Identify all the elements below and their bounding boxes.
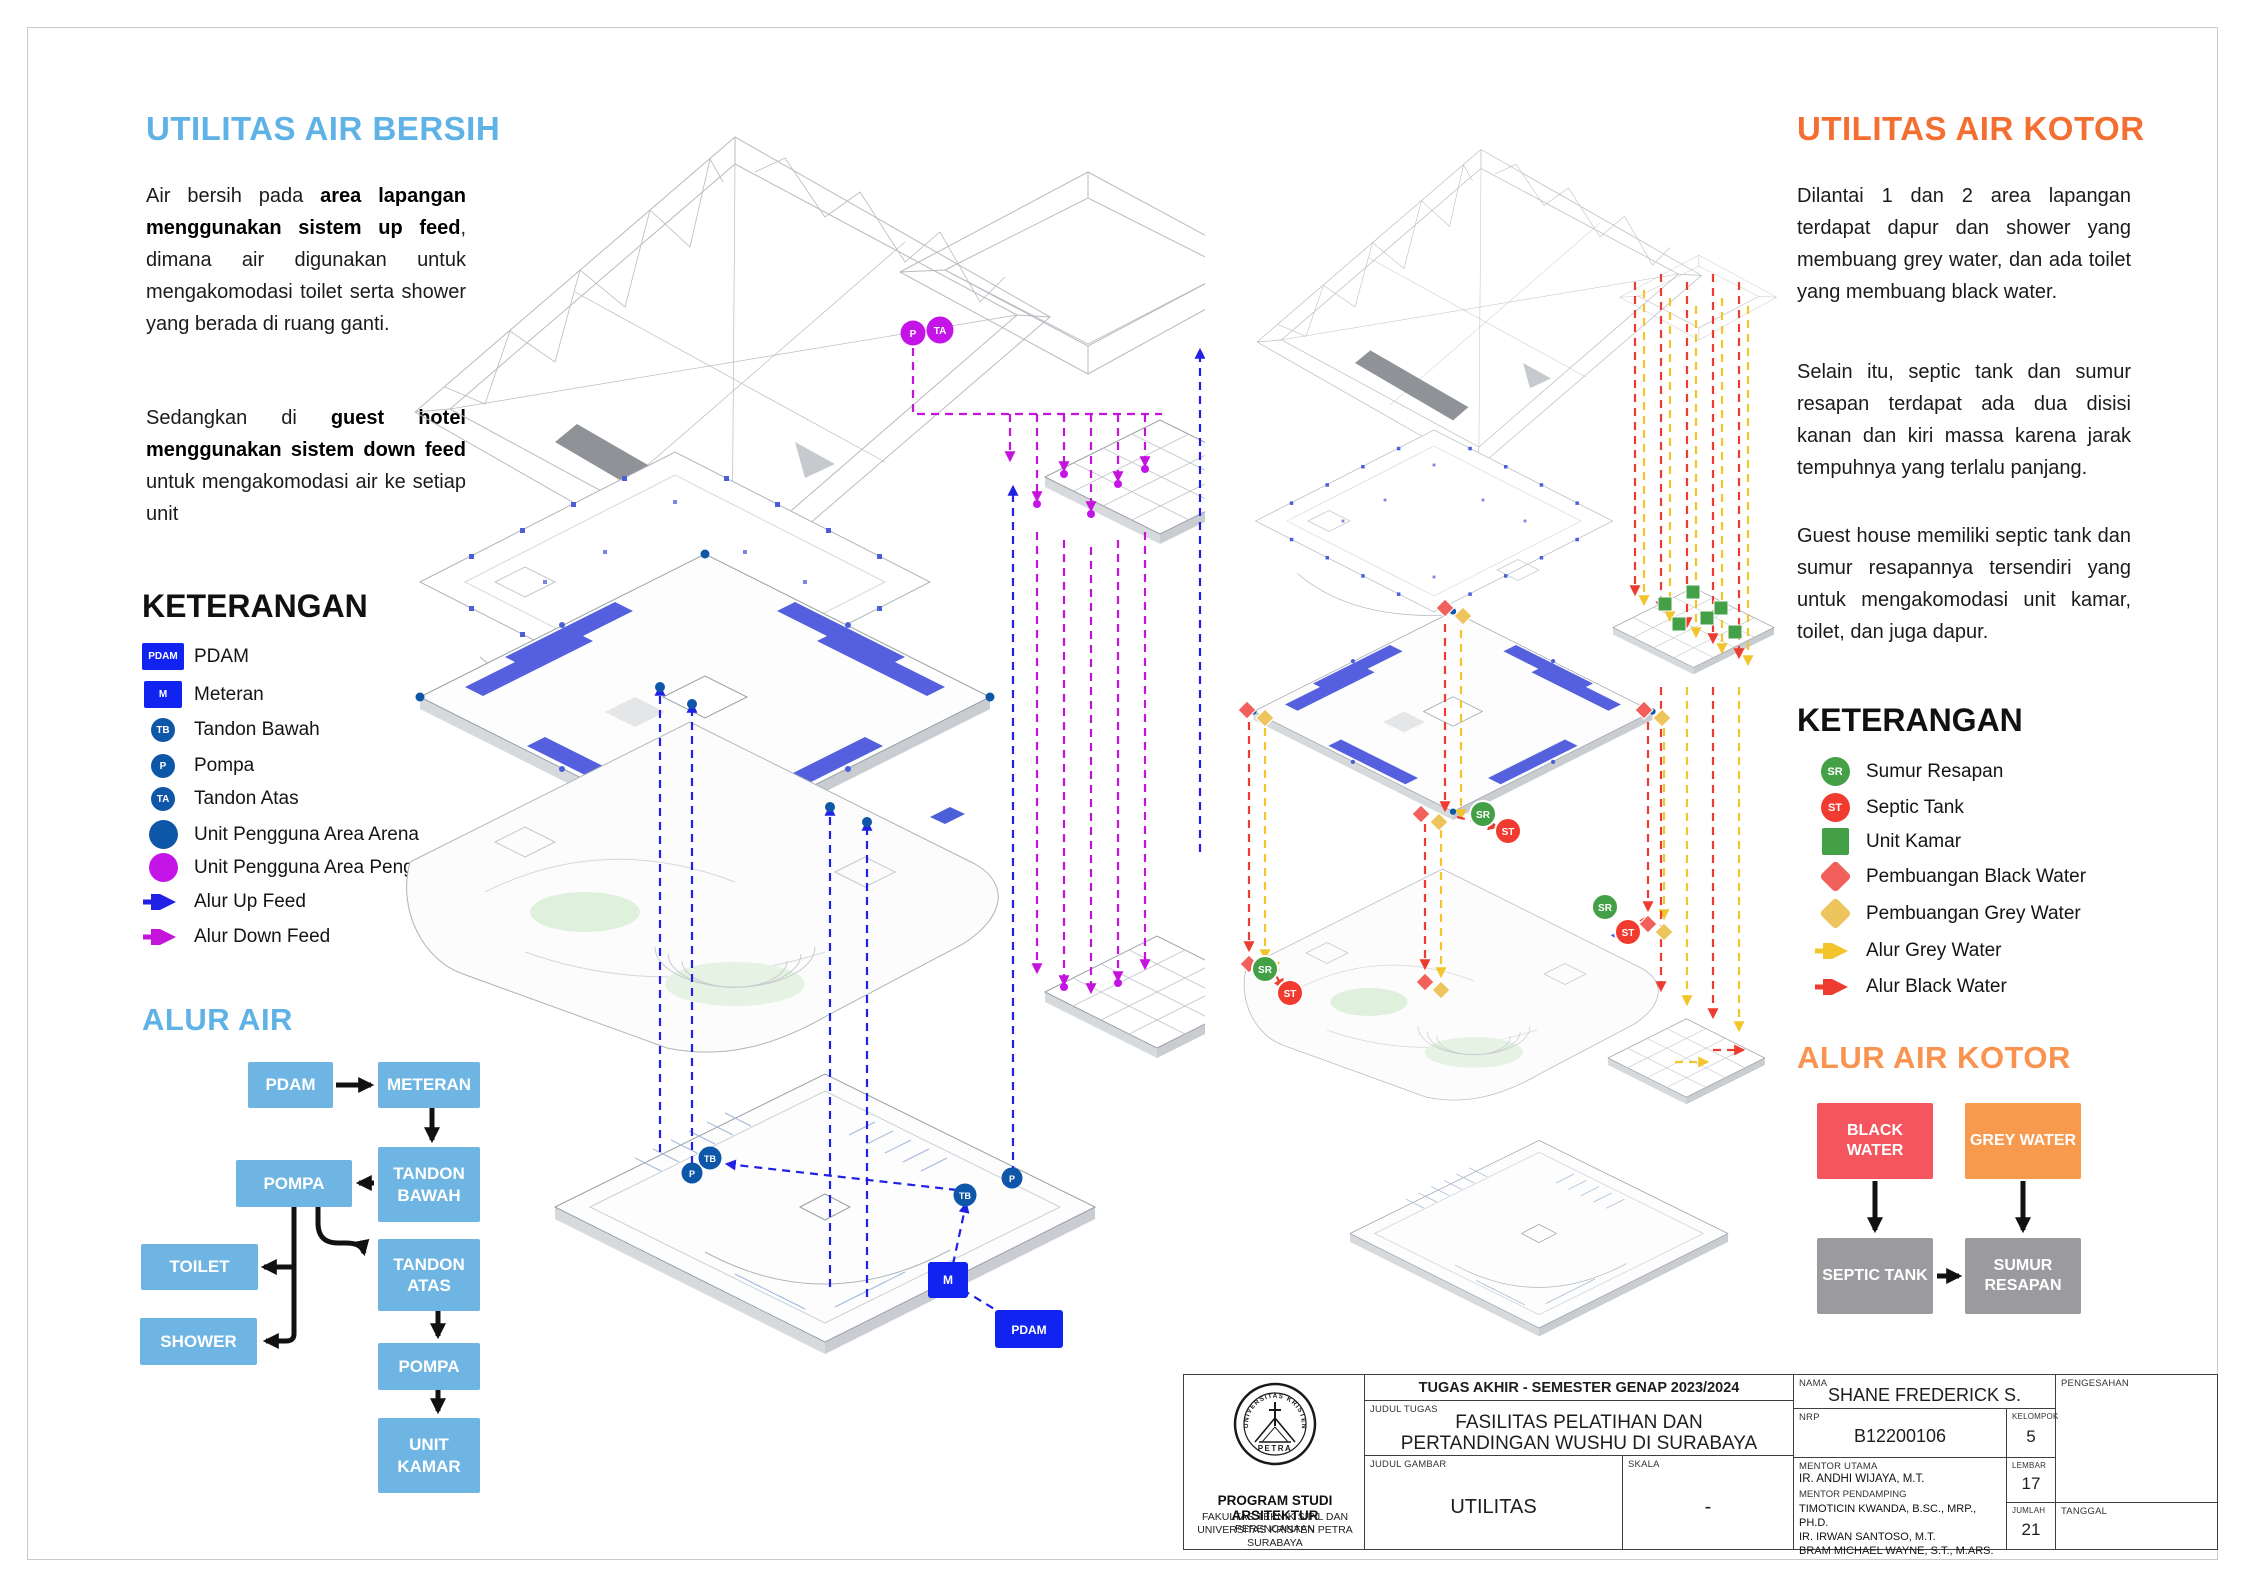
flow-box-pdam: PDAM (248, 1062, 333, 1108)
title-air-kotor: UTILITAS AIR KOTOR (1797, 110, 2145, 148)
badge-text: M (159, 689, 167, 700)
skala-label: SKALA (1628, 1459, 1660, 1470)
titleblock-pengesahan-cell: PENGESAHAN (2055, 1374, 2218, 1503)
titleblock-header-cell: TUGAS AKHIR - SEMESTER GENAP 2023/2024 (1364, 1374, 1794, 1401)
legend-label: Pompa (194, 755, 254, 777)
institution-university: UNIVERSITAS KRISTEN PETRA (1184, 1524, 1366, 1536)
legend-item-unit-kamar: Unit Kamar (1812, 828, 1961, 855)
nama-value: SHANE FREDERICK S. (1794, 1385, 2055, 1406)
title-block: UNIVERSITAS KRISTEN PETRA PROGRAM STUDI … (1183, 1374, 2218, 1550)
legend-label: Pembuangan Grey Water (1866, 903, 2081, 925)
pompa-marker-label: P (689, 1169, 695, 1179)
pdam-marker-label: PDAM (1011, 1323, 1046, 1337)
flow-box-black-water: BLACK WATER (1817, 1103, 1933, 1179)
legend-item-tandon-bawah: TB Tandon Bawah (140, 718, 320, 742)
legend-item-meteran: M Meteran (140, 681, 264, 708)
legend-kotor: SR Sumur Resapan ST Septic Tank Unit Kam… (1812, 757, 2192, 1017)
paragraph-text: Sedangkan di (146, 407, 331, 429)
paragraph-kotor-1: Dilantai 1 dan 2 area lapangan terdapat … (1797, 180, 2131, 308)
building-base (407, 137, 1205, 1354)
sumur-resapan-icon: SR (1821, 757, 1850, 786)
jumlah-label: JUMLAH (2012, 1506, 2045, 1515)
poster-page: UTILITAS AIR BERSIH Air bersih pada area… (0, 0, 2245, 1587)
titleblock-jumlah-cell: JUMLAH 21 (2006, 1502, 2056, 1550)
legend-label: Meteran (194, 684, 264, 706)
kelompok-label: KELOMPOK (2012, 1412, 2059, 1421)
paragraph-text: Air bersih pada (146, 185, 320, 207)
badge-text: SR (1827, 766, 1842, 778)
mentor-pendamping-3: BRAM MICHAEL WAYNE, S.T., M.ARS. (1799, 1544, 2006, 1558)
flow-box-toilet: TOILET (141, 1244, 258, 1290)
flow-box-pompa-1: POMPA (236, 1160, 352, 1207)
legend-label: Alur Grey Water (1866, 940, 2002, 962)
unit-kamar-square-icon (1822, 828, 1849, 855)
titleblock-skala-cell: SKALA - (1622, 1455, 1794, 1550)
legend-item-up-feed: Alur Up Feed (140, 891, 306, 913)
pdam-badge-icon: PDAM (142, 643, 184, 670)
badge-text: ST (1828, 802, 1842, 814)
legend-label: Unit Kamar (1866, 831, 1961, 853)
legend-label: Sumur Resapan (1866, 761, 2003, 783)
flowchart-alur-air-kotor: BLACK WATER GREY WATER SEPTIC TANK SUMUR… (1790, 1085, 2220, 1325)
alur-air-kotor-title: ALUR AIR KOTOR (1797, 1040, 2071, 1076)
logo-banner-text: PETRA (1258, 1444, 1293, 1453)
titleblock-tanggal-cell: TANGGAL (2055, 1502, 2218, 1550)
pompa-marker-label: P (1009, 1174, 1015, 1184)
tandon-bawah-marker-label: TB (959, 1191, 971, 1201)
flow-box-septic-tank: SEPTIC TANK (1817, 1238, 1933, 1314)
judul-tugas-value: FASILITAS PELATIHAN DAN PERTANDINGAN WUS… (1365, 1412, 1793, 1454)
legend-item-alur-grey: Alur Grey Water (1812, 940, 2002, 962)
flow-box-sumur-resapan: SUMUR RESAPAN (1965, 1238, 2081, 1314)
pompa-icon: P (151, 754, 175, 778)
legend-item-pembuangan-grey: Pembuangan Grey Water (1812, 902, 2081, 925)
mentor-pendamping-1: TIMOTICIN KWANDA, B.SC., MRP., PH.D. (1799, 1502, 2006, 1530)
mentor-pendamping-2: IR. IRWAN SANTOSO, M.T. (1799, 1530, 2006, 1544)
jumlah-value: 21 (2007, 1520, 2055, 1540)
sumur-resapan-marker-label: SR (1258, 965, 1273, 976)
legend-label: PDAM (194, 646, 249, 668)
titleblock-nrp-cell: NRP B12200106 (1793, 1408, 2007, 1458)
paragraph-kotor-3: Guest house memiliki septic tank dan sum… (1797, 520, 2131, 648)
mentor-pendamping-label: MENTOR PENDAMPING (1799, 1489, 1907, 1500)
grey-water-arrow-icon (1813, 943, 1857, 959)
flow-box-shower: SHOWER (140, 1318, 257, 1365)
tandon-atas-marker-label: TA (934, 326, 947, 337)
sumur-resapan-marker-label: SR (1476, 810, 1491, 821)
legend-item-down-feed: Alur Down Feed (140, 926, 330, 948)
diagram-air-bersih: P TA P TB TB P M PDAM (405, 112, 1205, 1362)
black-water-diamond-icon (1819, 860, 1852, 893)
nrp-label: NRP (1799, 1412, 1820, 1423)
mentor-utama-label: MENTOR UTAMA (1799, 1461, 1878, 1472)
lembar-value: 17 (2007, 1474, 2055, 1494)
septic-tank-marker-label: ST (1502, 827, 1515, 838)
septic-tank-marker-label: ST (1284, 989, 1297, 1000)
diagram-air-kotor: SR ST SR ST SR ST (1235, 112, 1795, 1362)
legend-label: Alur Up Feed (194, 891, 306, 913)
legend-item-pdam: PDAM PDAM (140, 643, 249, 670)
titleblock-kelompok-cell: KELOMPOK 5 (2006, 1408, 2056, 1458)
mentor-utama-value: IR. ANDHI WIJAYA, M.T. (1799, 1473, 1924, 1485)
badge-text: P (160, 761, 167, 772)
judul-gambar-label: JUDUL GAMBAR (1370, 1459, 1446, 1470)
legend-label: Unit Pengguna Area Arena (194, 824, 419, 846)
legend-label: Alur Down Feed (194, 926, 330, 948)
legend-item-pembuangan-black: Pembuangan Black Water (1812, 865, 2086, 888)
titleblock-nama-cell: NAMA SHANE FREDERICK S. (1793, 1374, 2056, 1409)
titleblock-judul-tugas-cell: JUDUL TUGAS FASILITAS PELATIHAN DAN PERT… (1364, 1400, 1794, 1456)
keterangan-bersih-title: KETERANGAN (142, 588, 368, 625)
up-feed-arrow-icon (141, 894, 185, 910)
titleblock-lembar-cell: LEMBAR 17 (2006, 1457, 2056, 1503)
alur-air-title: ALUR AIR (142, 1002, 293, 1038)
judul-gambar-value: UTILITAS (1365, 1496, 1622, 1519)
legend-label: Alur Black Water (1866, 976, 2007, 998)
badge-text: TB (156, 725, 169, 736)
tandon-bawah-marker-label: TB (704, 1154, 716, 1164)
keterangan-kotor-title: KETERANGAN (1797, 702, 2023, 739)
skala-value: - (1623, 1496, 1793, 1519)
legend-label: Tandon Bawah (194, 719, 320, 741)
flow-box-grey-water: GREY WATER (1965, 1103, 2081, 1179)
tandon-bawah-icon: TB (151, 718, 175, 742)
legend-item-tandon-atas: TA Tandon Atas (140, 787, 299, 811)
titleblock-institution-cell: UNIVERSITAS KRISTEN PETRA PROGRAM STUDI … (1183, 1374, 1365, 1550)
legend-label: Tandon Atas (194, 788, 299, 810)
titleblock-judul-gambar-cell: JUDUL GAMBAR UTILITAS (1364, 1455, 1623, 1550)
sumur-resapan-marker-label: SR (1598, 903, 1613, 914)
lembar-label: LEMBAR (2012, 1461, 2046, 1470)
legend-label: Septic Tank (1866, 797, 1964, 819)
septic-tank-marker-label: ST (1622, 928, 1635, 939)
unit-penginapan-dot-icon (149, 853, 178, 882)
legend-item-septic-tank: ST Septic Tank (1812, 793, 1964, 822)
legend-item-alur-black: Alur Black Water (1812, 976, 2007, 998)
pengesahan-label: PENGESAHAN (2061, 1378, 2129, 1389)
grey-water-diamond-icon (1819, 897, 1852, 930)
tandon-atas-icon: TA (151, 787, 175, 811)
pompa-marker-label: P (910, 329, 917, 340)
mentor-pendamping-values: TIMOTICIN KWANDA, B.SC., MRP., PH.D. IR.… (1799, 1502, 2006, 1558)
septic-tank-icon: ST (1821, 793, 1850, 822)
unit-arena-dot-icon (149, 820, 178, 849)
kelompok-value: 5 (2007, 1427, 2055, 1447)
legend-item-sumur-resapan: SR Sumur Resapan (1812, 757, 2003, 786)
tanggal-label: TANGGAL (2061, 1506, 2107, 1517)
titleblock-mentor-cell: MENTOR UTAMA IR. ANDHI WIJAYA, M.T. MENT… (1793, 1457, 2007, 1550)
university-logo: UNIVERSITAS KRISTEN PETRA (1232, 1381, 1318, 1467)
legend-item-pompa: P Pompa (140, 754, 254, 778)
legend-label: Pembuangan Black Water (1866, 866, 2086, 888)
institution-city: SURABAYA (1184, 1537, 1366, 1549)
down-feed-arrow-icon (141, 929, 185, 945)
black-water-arrow-icon (1813, 979, 1857, 995)
paragraph-kotor-2: Selain itu, septic tank dan sumur resapa… (1797, 356, 2131, 484)
badge-text: PDAM (148, 651, 177, 662)
meteran-badge-icon: M (144, 681, 182, 708)
badge-text: TA (157, 794, 170, 805)
nrp-value: B12200106 (1794, 1426, 2006, 1447)
titleblock-header: TUGAS AKHIR - SEMESTER GENAP 2023/2024 (1365, 1380, 1793, 1396)
flow-box-unit-kamar: UNIT KAMAR (378, 1418, 480, 1493)
legend-item-unit-arena: Unit Pengguna Area Arena (140, 820, 419, 849)
meteran-marker-label: M (943, 1273, 953, 1287)
